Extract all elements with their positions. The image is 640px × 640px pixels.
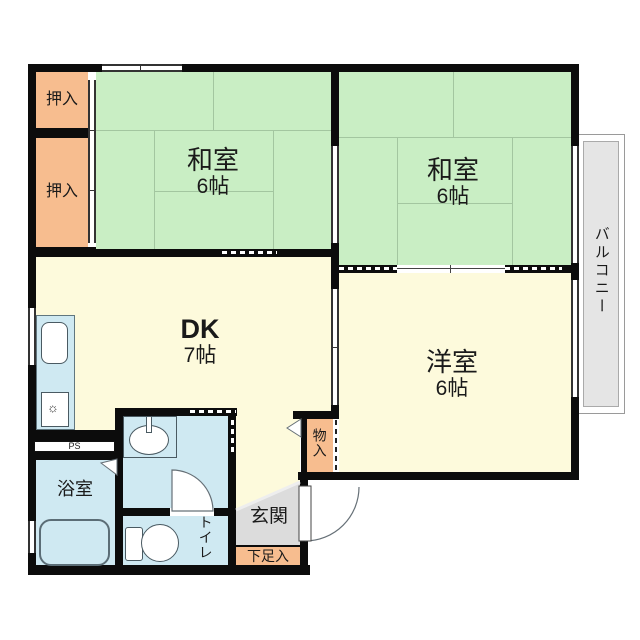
label-shoe-storage: 下足入 bbox=[237, 549, 299, 565]
sliding-track-open bbox=[397, 265, 505, 273]
sliding-door-tick bbox=[90, 130, 94, 131]
label-dk: DK 7帖 bbox=[120, 314, 280, 368]
sliding-door-closet bbox=[88, 80, 96, 243]
room-size: 6帖 bbox=[372, 377, 532, 401]
wall-closet-divider bbox=[28, 128, 96, 138]
room-size: 6帖 bbox=[373, 185, 533, 209]
window-left-dk bbox=[28, 308, 36, 365]
tatami-line bbox=[213, 72, 214, 130]
sliding-track-line bbox=[397, 268, 505, 269]
wall-bottom bbox=[28, 565, 310, 575]
label-japanese-1: 和室 6帖 bbox=[133, 146, 293, 199]
label-genkan: 玄関 bbox=[239, 506, 299, 527]
fusuma-marker bbox=[222, 251, 277, 254]
sliding-track-tick bbox=[450, 265, 451, 273]
sliding-door-tick bbox=[333, 347, 337, 348]
wall-closet-bottom bbox=[28, 247, 96, 257]
label-storage: 物入 bbox=[311, 428, 327, 458]
label-pipe-space: PS bbox=[34, 442, 115, 451]
wall-kitchen-bottom bbox=[28, 430, 115, 441]
faucet bbox=[146, 416, 152, 433]
room-name: 和室 bbox=[373, 156, 533, 185]
sliding-door-tick bbox=[90, 190, 94, 191]
toilet-bowl bbox=[141, 524, 179, 562]
wall-genkan-shoe-line bbox=[236, 545, 300, 547]
label-bathroom: 浴室 bbox=[40, 479, 110, 499]
label-balcony: バルコニー bbox=[592, 226, 609, 316]
label-closet-2: 押入 bbox=[36, 183, 88, 201]
floor-plan: ☼ 押入 押入 和室 6帖 和室 6帖 DK 7帖 洋室 6帖 バルコニー 浴室… bbox=[0, 0, 640, 640]
label-closet-1: 押入 bbox=[36, 91, 88, 109]
tatami-line bbox=[339, 137, 571, 138]
room-name: 洋室 bbox=[372, 348, 532, 377]
bathtub bbox=[39, 519, 110, 566]
entrance-door-arc bbox=[305, 487, 359, 541]
wall-japanese-divider-top bbox=[331, 64, 339, 146]
burner-icon: ☼ bbox=[47, 401, 59, 416]
wall-entrance-right bbox=[300, 480, 308, 575]
wall-western-bottom bbox=[298, 472, 579, 480]
wall-storage-left bbox=[301, 419, 307, 472]
wall-japanese-divider-bottom bbox=[331, 243, 339, 257]
room-name: 和室 bbox=[133, 146, 293, 175]
tatami-line bbox=[453, 72, 454, 137]
wall-storage-top bbox=[293, 411, 339, 419]
kitchen-sink bbox=[41, 322, 68, 364]
room-size: 7帖 bbox=[120, 344, 280, 368]
wall-dk-hall-top bbox=[331, 257, 339, 289]
wall-ps-bottom bbox=[28, 452, 123, 460]
window-top bbox=[102, 64, 182, 72]
fusuma-marker bbox=[339, 267, 397, 270]
window-balcony-japanese2 bbox=[571, 146, 579, 263]
window-left-bath bbox=[28, 521, 36, 553]
wall-dk-top bbox=[88, 249, 339, 257]
room-name: DK bbox=[120, 314, 280, 344]
storage-door-marker bbox=[335, 420, 337, 471]
window-tick bbox=[140, 66, 141, 70]
fusuma-marker bbox=[505, 267, 562, 270]
label-japanese-2: 和室 6帖 bbox=[373, 156, 533, 209]
room-size: 6帖 bbox=[133, 175, 293, 199]
window-balcony-western bbox=[571, 280, 579, 397]
tatami-line bbox=[96, 130, 331, 131]
fusuma-marker bbox=[190, 410, 236, 413]
fusuma-marker bbox=[231, 420, 234, 456]
sliding-door-japanese-rooms bbox=[331, 146, 339, 243]
label-western: 洋室 6帖 bbox=[372, 348, 532, 401]
label-toilet: トイレ bbox=[197, 515, 213, 560]
wall-bath-washroom bbox=[115, 408, 123, 565]
